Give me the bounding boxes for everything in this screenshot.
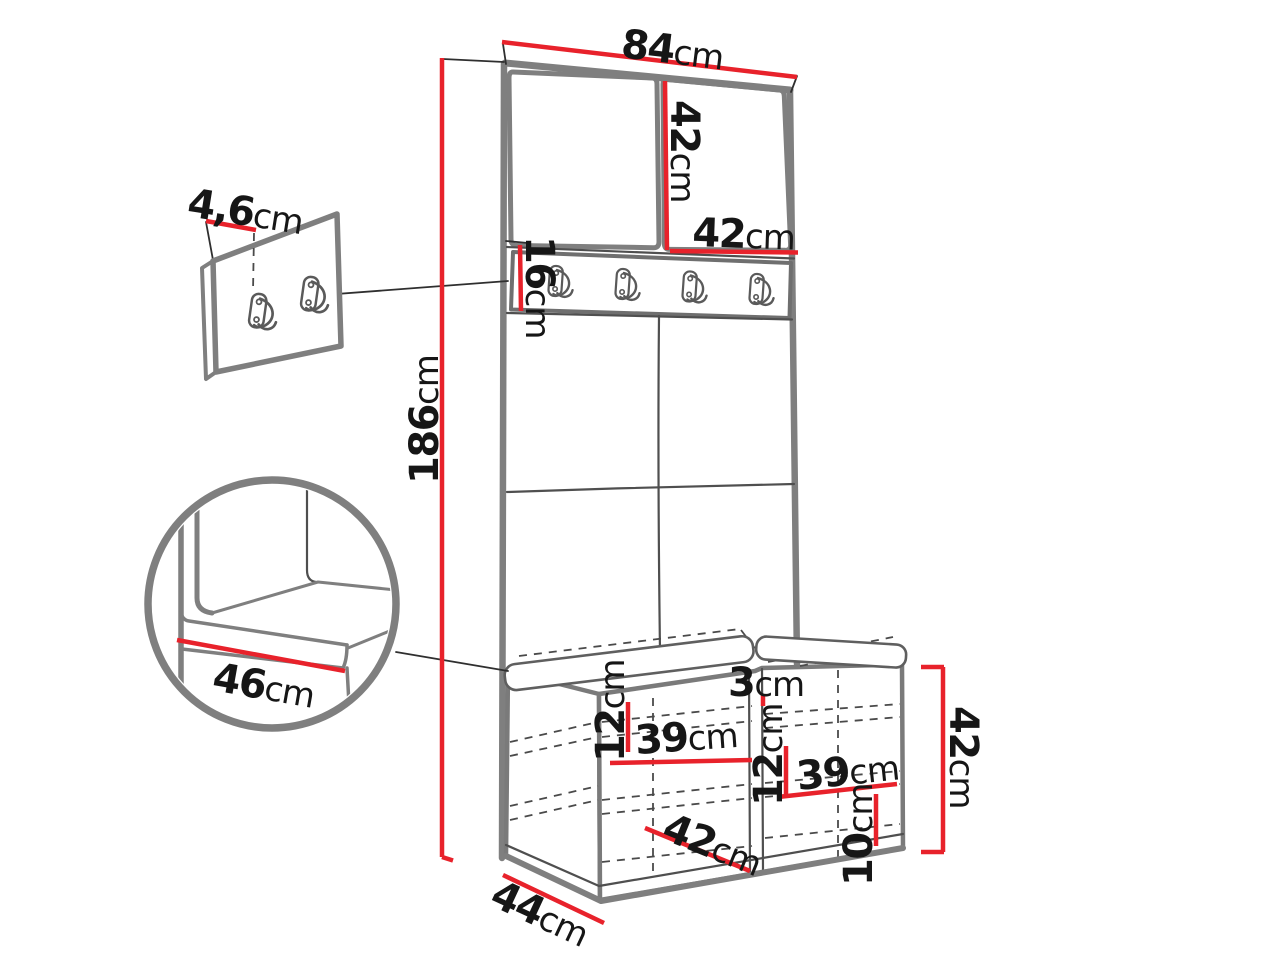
label-total-height: 186cm xyxy=(402,355,448,484)
dimension-diagram: 84cm 42cm 42cm 16cm 186cm 3cm 12cm 39cm … xyxy=(0,0,1280,960)
label-seat-gap: 3cm xyxy=(728,660,804,706)
label-door-height: 42cm xyxy=(661,100,707,203)
label-left-shelf-spacing: 12cm xyxy=(588,660,634,763)
label-hook-rail-height: 16cm xyxy=(516,236,562,339)
dim-line-bench-height xyxy=(921,667,944,852)
label-bottom-shelf-spacing: 10cm xyxy=(836,784,882,887)
circle-detail-leader-line xyxy=(396,652,508,671)
label-bench-height: 42cm xyxy=(940,706,986,809)
label-right-shelf-spacing: 12cm xyxy=(746,704,792,807)
diagram-canvas: 84cm 42cm 42cm 16cm 186cm 3cm 12cm 39cm … xyxy=(0,0,1280,960)
corner-detail-circle: 46cm xyxy=(148,480,397,728)
wall-panel-detail: 4,6cm xyxy=(184,180,341,379)
label-wall-panel-thickness: 4,6cm xyxy=(184,180,306,244)
label-left-compartment-width: 39cm xyxy=(633,711,738,764)
label-door-width: 42cm xyxy=(692,210,796,260)
unit-left-edge xyxy=(502,64,504,858)
label-top-width: 84cm xyxy=(619,21,726,79)
